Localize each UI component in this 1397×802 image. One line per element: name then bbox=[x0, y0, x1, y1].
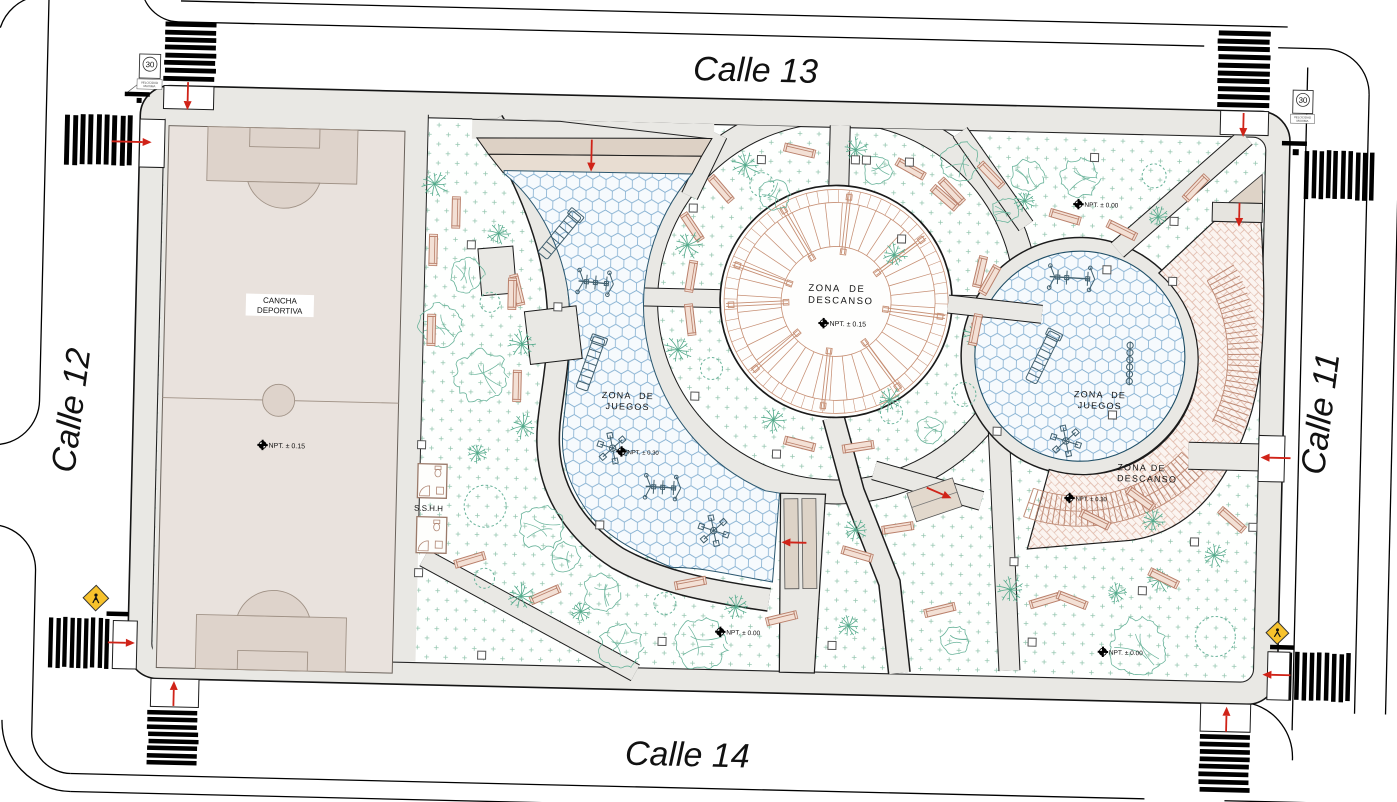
svg-text:DEPORTIVA: DEPORTIVA bbox=[257, 306, 303, 316]
svg-text:DESCANSO: DESCANSO bbox=[808, 295, 874, 308]
svg-text:DESCANSO: DESCANSO bbox=[1117, 473, 1177, 484]
svg-text:NPT. ± 0.00: NPT. ± 0.00 bbox=[1109, 649, 1143, 657]
svg-text:30: 30 bbox=[1298, 96, 1308, 105]
svg-text:Calle 14: Calle 14 bbox=[625, 735, 751, 776]
svg-text:S.S.H.H: S.S.H.H bbox=[414, 504, 443, 514]
svg-text:ZONA DE: ZONA DE bbox=[1074, 389, 1126, 400]
svg-text:NPT. ± 0.30: NPT. ± 0.30 bbox=[1075, 497, 1107, 504]
svg-text:CANCHA: CANCHA bbox=[263, 296, 298, 306]
svg-text:ZONA DE: ZONA DE bbox=[1117, 462, 1166, 473]
svg-text:JUEGOS: JUEGOS bbox=[605, 401, 649, 412]
svg-text:NPT. ± 0.15: NPT. ± 0.15 bbox=[268, 443, 305, 451]
svg-text:Calle 13: Calle 13 bbox=[693, 50, 819, 91]
svg-text:NPT. ± 0.30: NPT. ± 0.30 bbox=[627, 450, 659, 457]
svg-text:ZONA DE: ZONA DE bbox=[808, 283, 865, 295]
svg-text:MAXIMA: MAXIMA bbox=[1297, 119, 1309, 123]
svg-text:NPT. ± 0.15: NPT. ± 0.15 bbox=[829, 321, 866, 329]
svg-text:30: 30 bbox=[145, 60, 155, 69]
svg-text:JUEGOS: JUEGOS bbox=[1078, 400, 1122, 411]
svg-text:ZONA DE: ZONA DE bbox=[602, 390, 654, 401]
svg-text:NPT. ± 0.00: NPT. ± 0.00 bbox=[726, 629, 760, 637]
svg-text:NPT. ± 0.00: NPT. ± 0.00 bbox=[1084, 202, 1118, 210]
svg-text:MAXIMA: MAXIMA bbox=[144, 84, 156, 88]
